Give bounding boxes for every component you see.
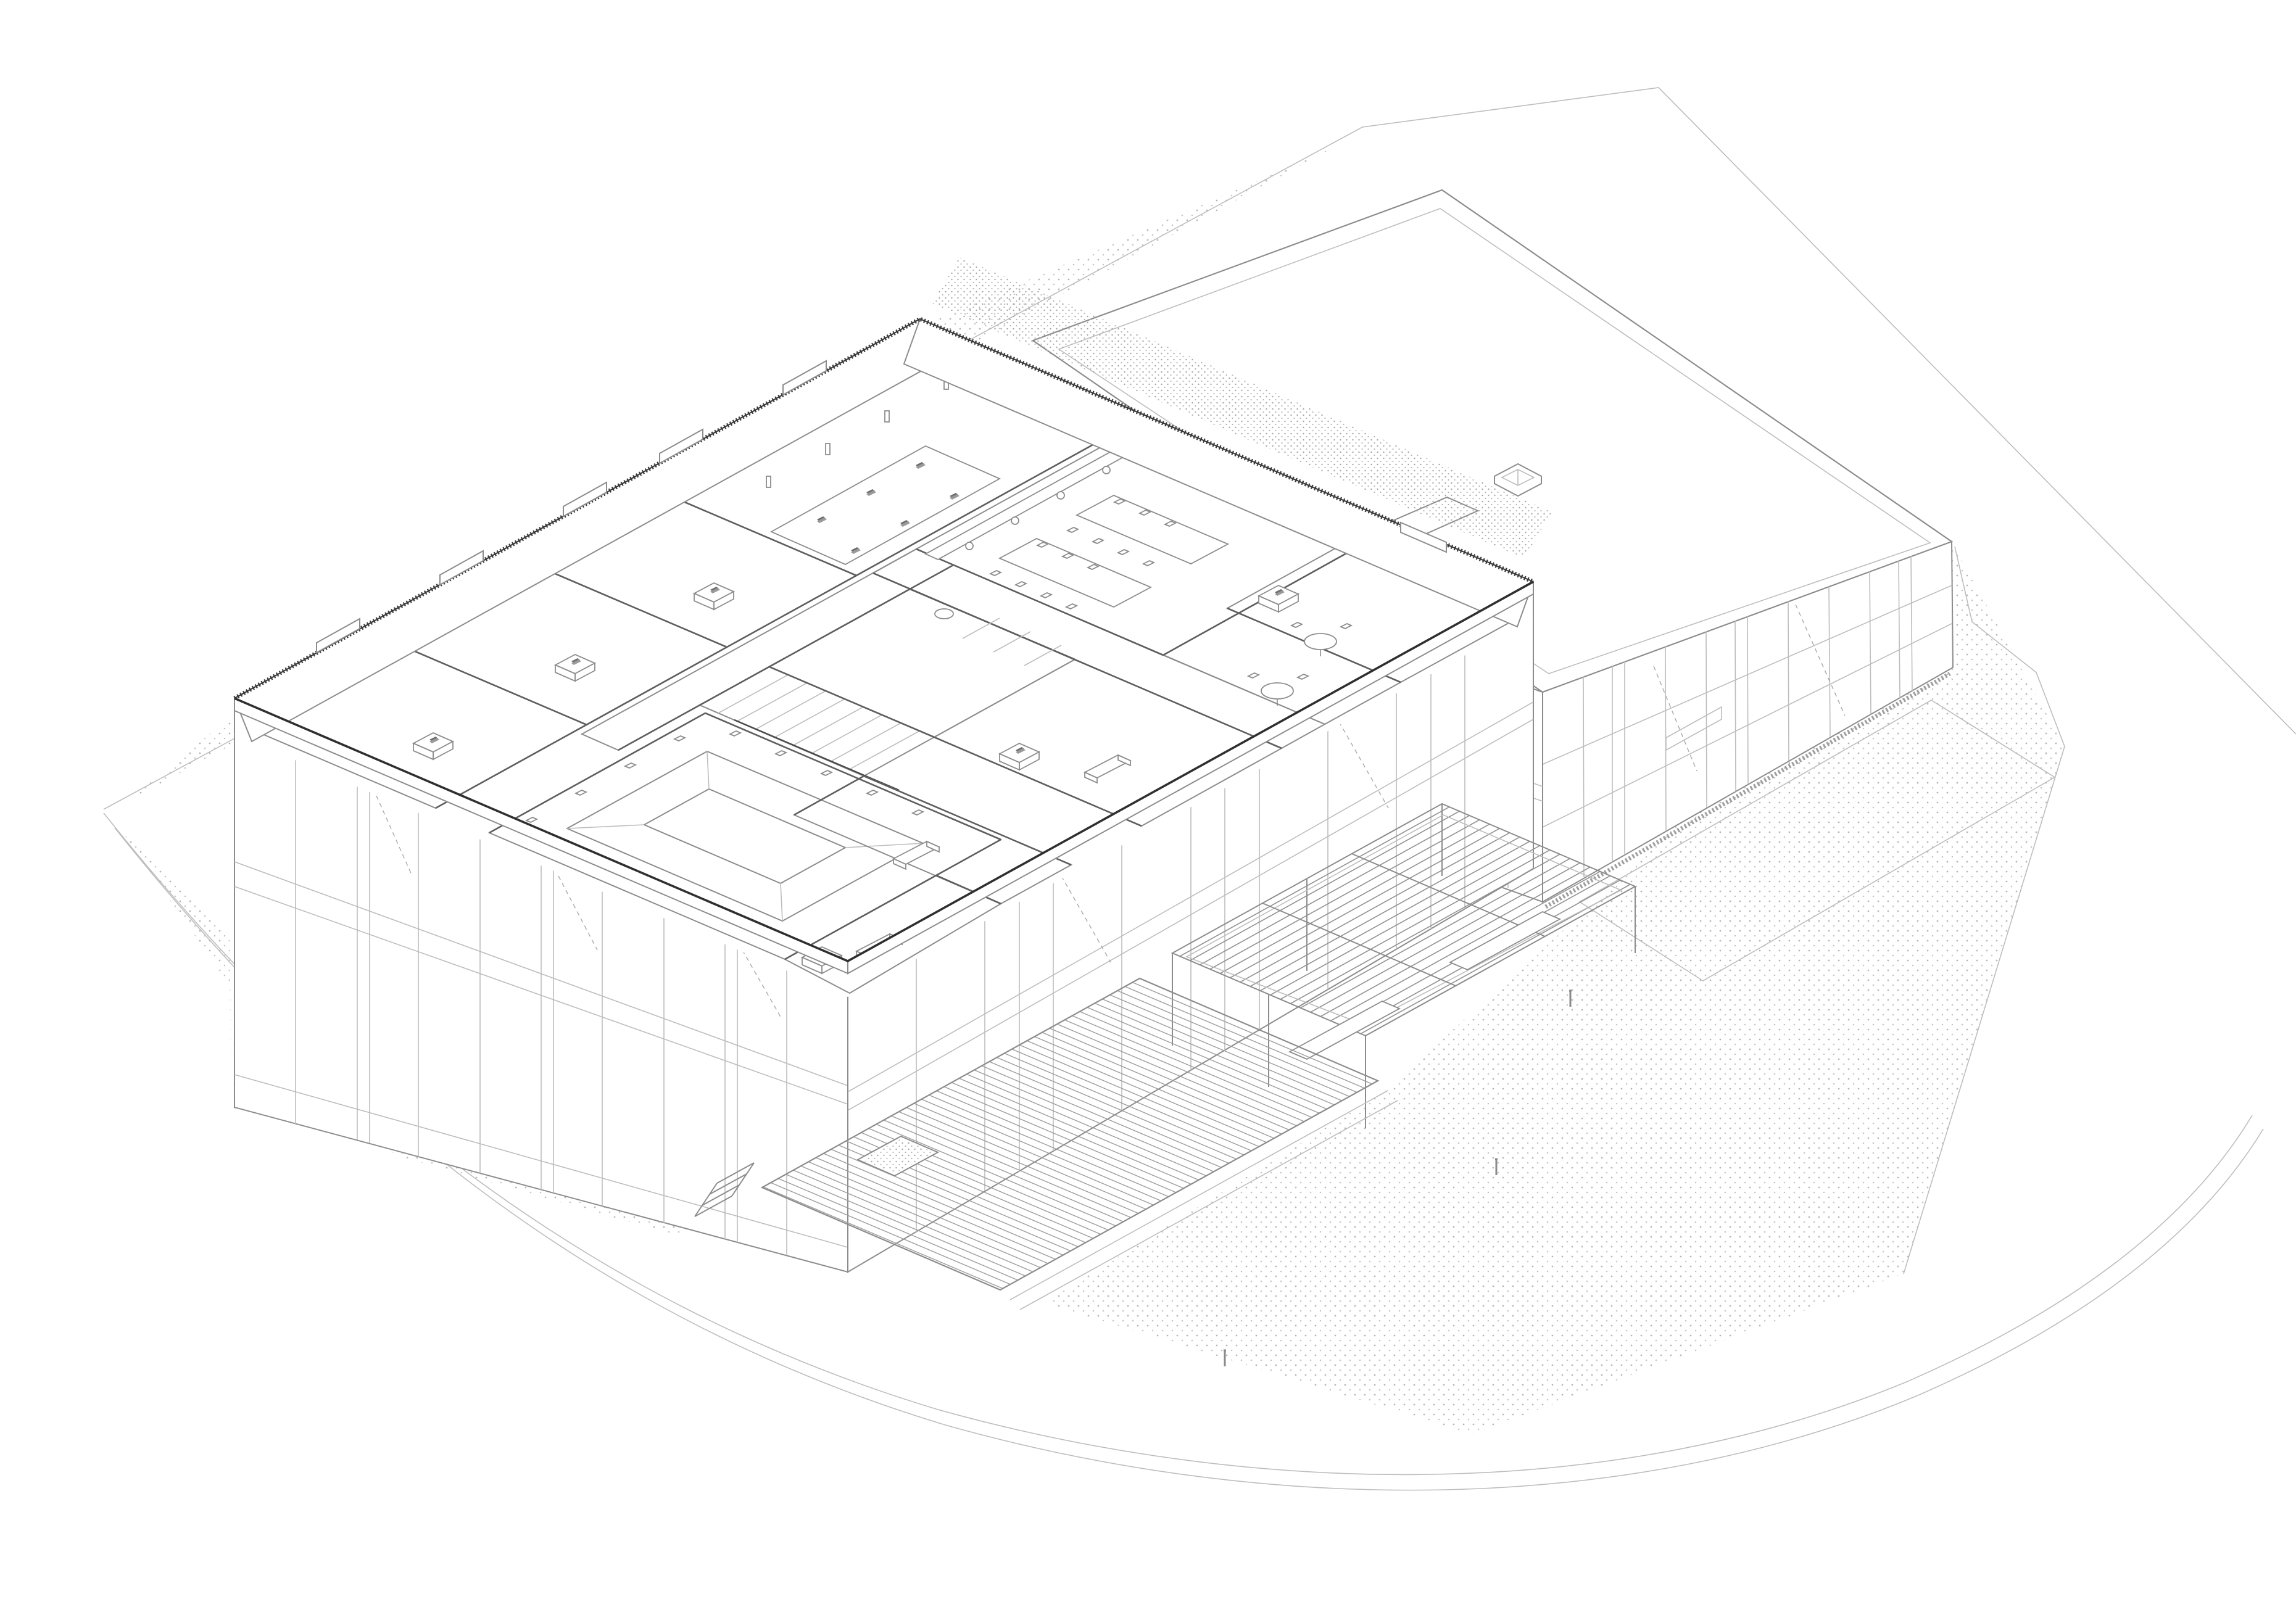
axonometric-drawing (0, 0, 2296, 1623)
drawing-page (0, 0, 2296, 1623)
